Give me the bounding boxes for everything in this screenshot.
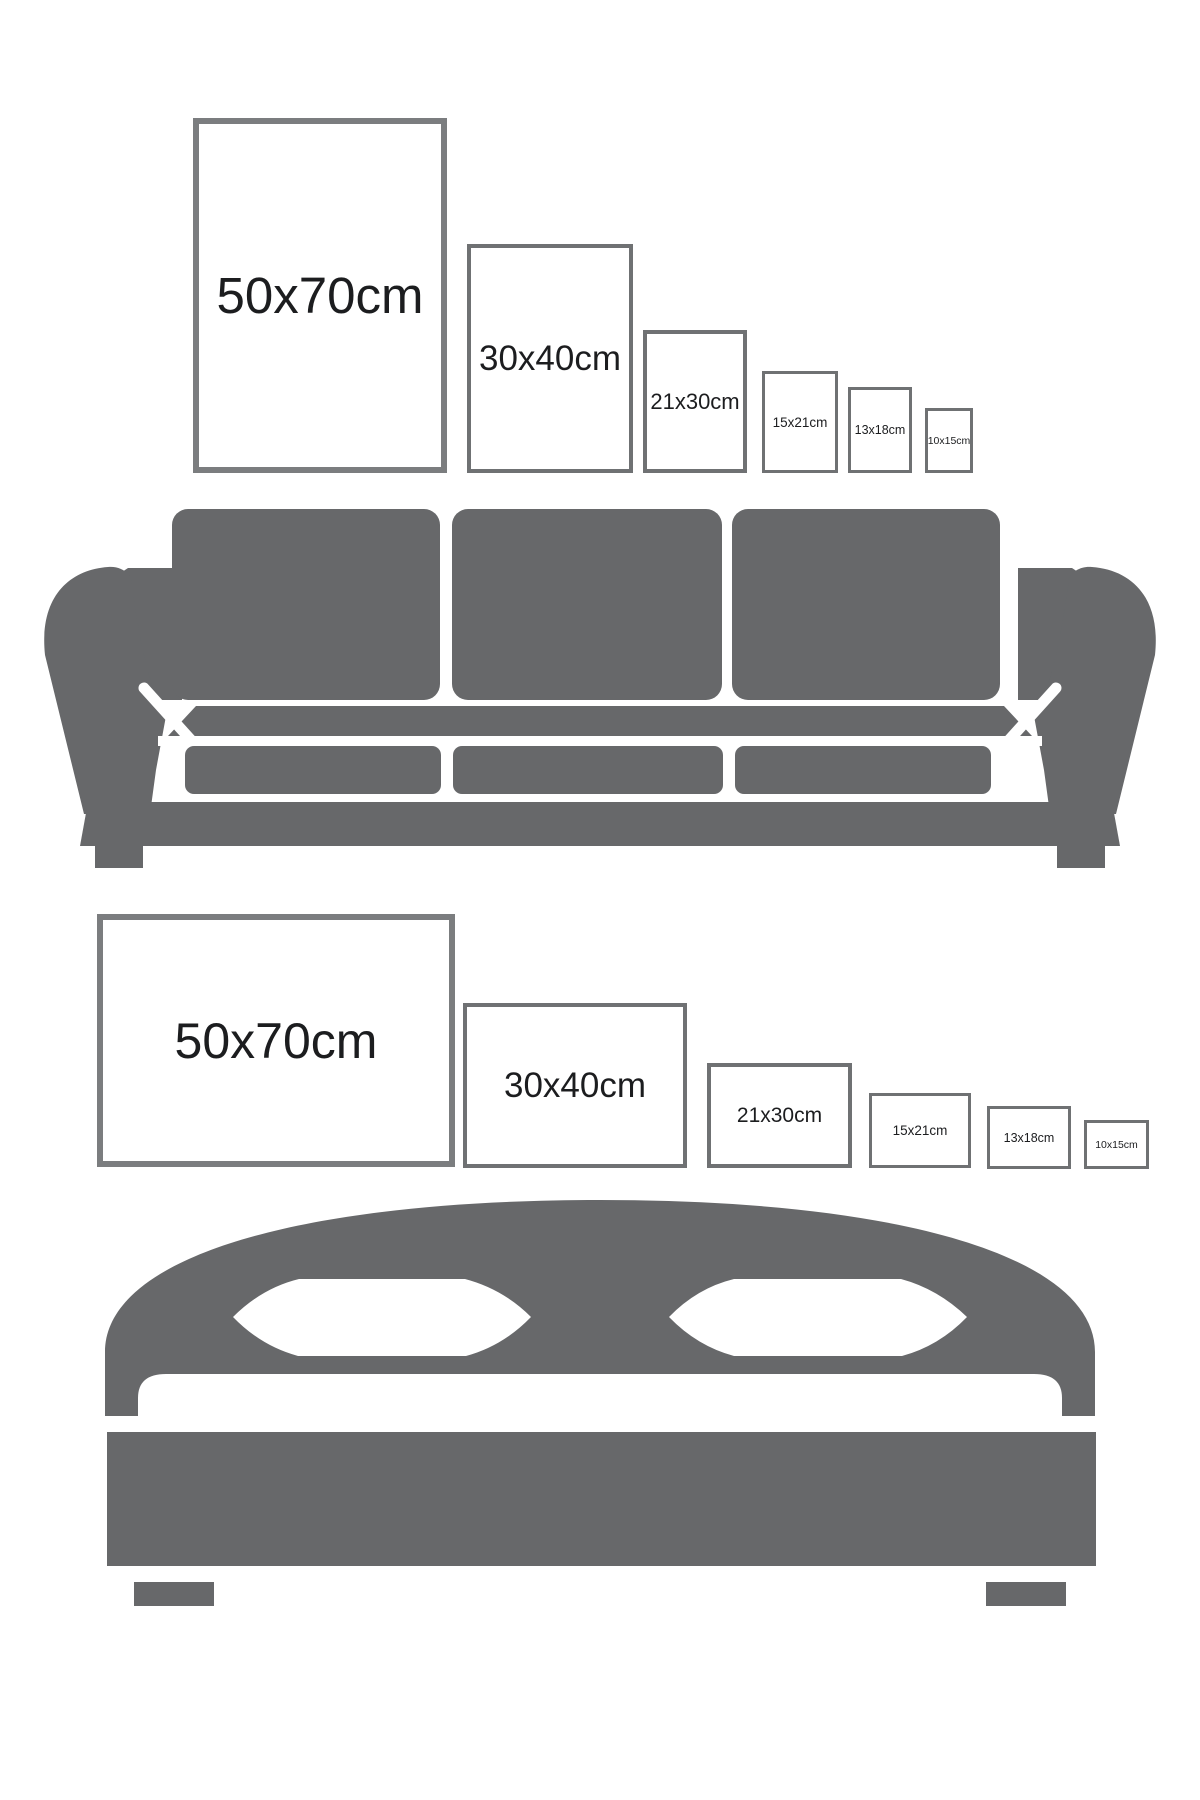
frame-13x18-landscape: 13x18cm <box>987 1106 1071 1169</box>
frame-size-label: 15x21cm <box>773 415 828 430</box>
frame-30x40-landscape: 30x40cm <box>463 1003 687 1168</box>
frame-10x15-portrait: 10x15cm <box>925 408 973 473</box>
frame-size-label: 13x18cm <box>1004 1131 1055 1145</box>
frame-10x15-landscape: 10x15cm <box>1084 1120 1149 1169</box>
frame-size-label: 21x30cm <box>650 389 739 415</box>
frame-size-label: 13x18cm <box>855 423 906 437</box>
frame-50x70-portrait: 50x70cm <box>193 118 447 473</box>
size-guide-canvas: 50x70cm 30x40cm 21x30cm 15x21cm 13x18cm … <box>0 0 1200 1800</box>
frame-size-label: 30x40cm <box>479 339 621 379</box>
frame-15x21-landscape: 15x21cm <box>869 1093 971 1168</box>
frame-size-label: 30x40cm <box>504 1066 646 1106</box>
frame-size-label: 10x15cm <box>928 435 971 447</box>
sofa-silhouette <box>44 509 1156 868</box>
frame-size-label: 50x70cm <box>175 1012 378 1070</box>
frame-size-label: 10x15cm <box>1095 1139 1138 1151</box>
sofa-illustration <box>0 470 1200 880</box>
frame-15x21-portrait: 15x21cm <box>762 371 838 473</box>
frame-21x30-landscape: 21x30cm <box>707 1063 852 1168</box>
frame-size-label: 21x30cm <box>737 1104 822 1128</box>
bed-illustration <box>0 1190 1200 1620</box>
frame-13x18-portrait: 13x18cm <box>848 387 912 473</box>
frame-size-label: 50x70cm <box>217 266 424 325</box>
frame-21x30-portrait: 21x30cm <box>643 330 747 473</box>
frame-30x40-portrait: 30x40cm <box>467 244 633 473</box>
frame-50x70-landscape: 50x70cm <box>97 914 455 1167</box>
frame-size-label: 15x21cm <box>893 1123 948 1138</box>
bed-silhouette <box>105 1200 1096 1606</box>
